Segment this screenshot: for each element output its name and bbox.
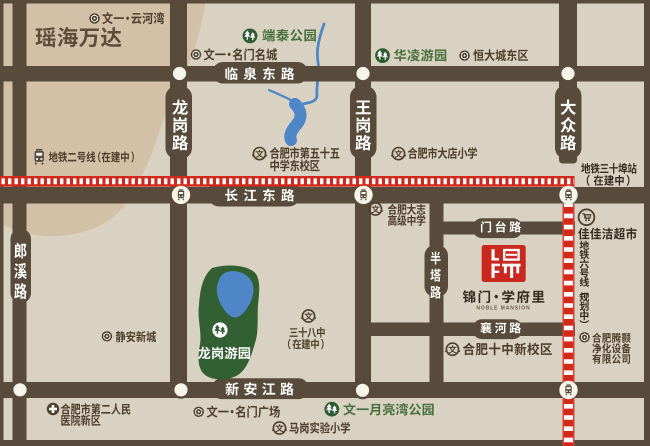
svg-text:NOBLE MANSION: NOBLE MANSION bbox=[476, 306, 530, 312]
